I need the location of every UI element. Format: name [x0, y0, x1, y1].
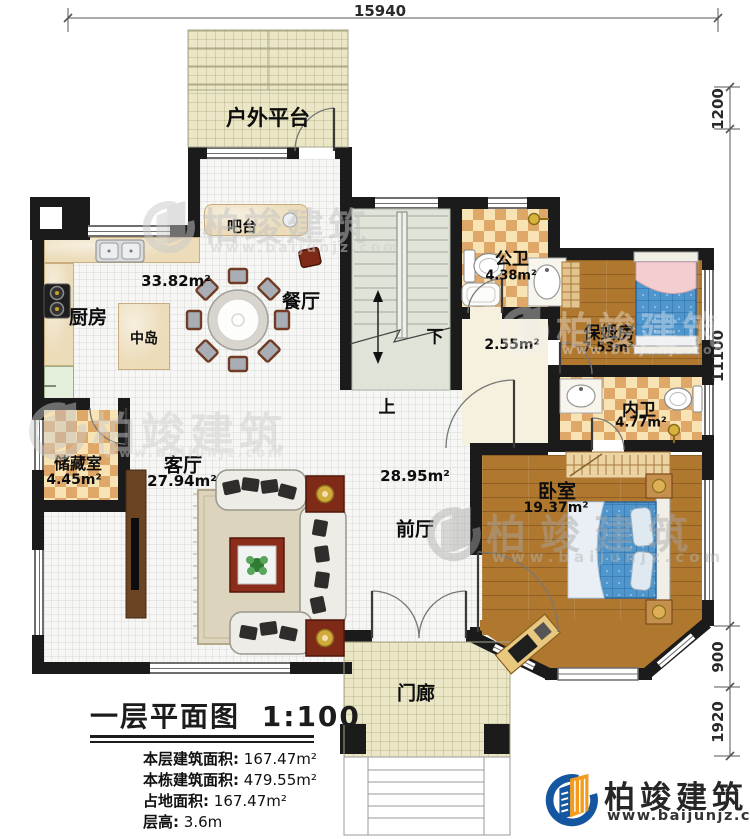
- window: [704, 480, 714, 600]
- wall: [548, 260, 560, 340]
- porch-steps: [344, 757, 510, 835]
- wall: [335, 147, 352, 159]
- window: [34, 420, 44, 470]
- wall: [470, 443, 482, 555]
- wall: [548, 440, 592, 452]
- platform-band: [188, 30, 348, 88]
- wall: [438, 197, 488, 209]
- porch-column: [484, 724, 510, 754]
- wall: [460, 307, 470, 319]
- brand-logo-icon: [543, 768, 601, 832]
- stat-row: 占地面积: 167.47m²: [143, 791, 317, 812]
- area-label-hall: 2.55m²: [484, 337, 539, 353]
- wall: [548, 197, 560, 248]
- wall: [290, 662, 352, 674]
- wall: [624, 440, 714, 452]
- room-label-storage: 储藏室: [54, 450, 102, 474]
- dimension-right-1200: 1200: [709, 79, 727, 139]
- stairs-down-label: 下: [427, 323, 444, 348]
- room-label-island: 中岛: [130, 328, 158, 348]
- window: [375, 197, 438, 209]
- wall: [32, 225, 44, 420]
- dimension-right-900: 900: [709, 632, 727, 682]
- wall: [188, 147, 207, 159]
- window: [34, 550, 44, 635]
- wall: [466, 630, 482, 642]
- area-label-storage: 4.45m²: [46, 472, 101, 488]
- wall: [502, 307, 548, 319]
- stat-row: 本栋建筑面积: 479.55m²: [143, 770, 317, 791]
- wall: [344, 630, 372, 642]
- area-label-public-bath: 4.38m²: [485, 269, 536, 284]
- plan-title: 一层平面图 1:100: [90, 695, 361, 735]
- room-label-public-bath: 公卫: [495, 245, 529, 270]
- wall: [118, 398, 130, 512]
- wall: [32, 500, 130, 512]
- room-label-porch: 门廊: [397, 679, 435, 706]
- floor-stairwell: [352, 209, 450, 390]
- stat-row: 层高: 3.6m: [143, 812, 317, 833]
- window: [150, 662, 290, 674]
- stats-block: 本层建筑面积: 167.47m² 本栋建筑面积: 479.55m² 占地面积: …: [143, 749, 317, 833]
- wall: [188, 147, 200, 237]
- title-underline: [90, 735, 314, 738]
- room-label-outdoor-platform: 户外平台: [226, 102, 310, 132]
- window: [704, 385, 714, 435]
- kitchen-counter-top: [44, 237, 200, 263]
- wall: [340, 159, 352, 390]
- area-label-front-hall: 28.95m²: [380, 467, 450, 485]
- window: [488, 197, 527, 209]
- wall: [548, 365, 714, 377]
- stat-row: 本层建筑面积: 167.47m²: [143, 749, 317, 770]
- dimension-top: 15940: [350, 2, 410, 20]
- area-label-bedroom: 19.37m²: [523, 500, 588, 516]
- wall: [450, 197, 462, 390]
- brand-url: www.baijunjz.com: [607, 808, 750, 824]
- plan-scale: 1:100: [262, 700, 361, 733]
- plan-title-text: 一层平面图: [90, 700, 240, 733]
- area-label-nanny: 7.53m²: [582, 341, 633, 356]
- stairs-up-label: 上: [379, 393, 396, 418]
- wall: [287, 147, 299, 159]
- area-label-dining: 33.82m²: [141, 272, 211, 290]
- room-label-kitchen: 厨房: [69, 303, 107, 330]
- floor-plan: 户外平台 吧台 厨房 中岛 33.82m² 餐厅 公卫 4.38m² 2.55m…: [0, 0, 750, 839]
- title-underline: [90, 741, 314, 743]
- area-label-living: 27.94m²: [147, 472, 217, 490]
- wall: [702, 248, 714, 270]
- window: [88, 225, 170, 237]
- window: [207, 147, 287, 159]
- dimension-right-11100: 11100: [709, 321, 727, 391]
- dimension-right-1920: 1920: [709, 694, 727, 750]
- wall: [32, 398, 90, 410]
- wall: [548, 248, 714, 260]
- wall: [32, 662, 150, 674]
- wall-niche: [40, 207, 62, 229]
- room-label-bar: 吧台: [227, 216, 257, 237]
- room-label-dining: 餐厅: [282, 287, 320, 314]
- floor-hallway: [462, 307, 548, 445]
- room-label-front-hall: 前厅: [396, 515, 434, 542]
- area-label-inner-bath: 4.77m²: [615, 416, 666, 431]
- floor-bedroom: [482, 455, 702, 635]
